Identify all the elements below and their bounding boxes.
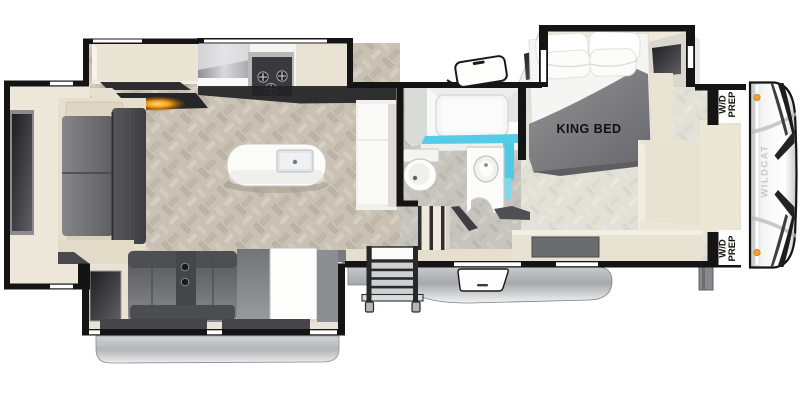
svg-text:KING BED: KING BED	[556, 122, 621, 136]
svg-text:WILDCAT: WILDCAT	[760, 145, 771, 198]
